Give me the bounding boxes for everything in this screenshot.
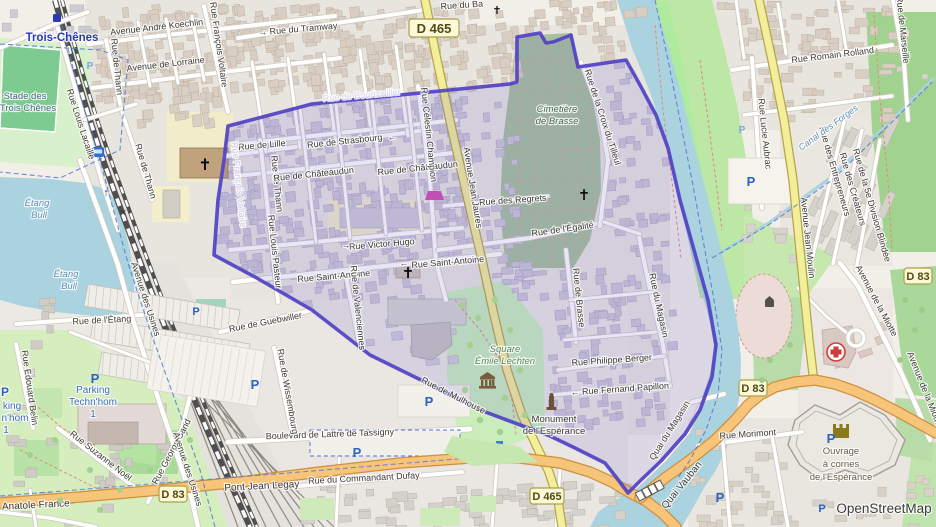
svg-text:P: P [91, 371, 100, 386]
svg-text:Étang: Étang [54, 269, 80, 280]
svg-text:D 83: D 83 [161, 489, 184, 501]
svg-text:P: P [251, 377, 260, 392]
svg-text:P: P [87, 61, 94, 72]
svg-text:Square: Square [490, 344, 521, 355]
svg-text:à cornes: à cornes [823, 459, 860, 470]
svg-text:P: P [1, 385, 9, 399]
svg-text:de l'Espérance: de l'Espérance [810, 472, 873, 483]
svg-text:Ouvrage: Ouvrage [823, 446, 859, 457]
svg-text:P: P [425, 394, 434, 409]
svg-text:Cimetière: Cimetière [537, 104, 578, 115]
svg-text:D 83: D 83 [906, 271, 929, 283]
svg-text:P: P [747, 174, 756, 189]
svg-text:de l'Espérance: de l'Espérance [523, 426, 586, 437]
svg-text:✕: ✕ [119, 208, 127, 218]
svg-text:Émile Lechten: Émile Lechten [475, 356, 535, 367]
svg-text:D 465: D 465 [417, 21, 452, 36]
svg-text:P: P [818, 503, 825, 515]
svg-text:Étang: Étang [25, 198, 51, 209]
svg-text:Techn'hom: Techn'hom [69, 397, 117, 408]
svg-text:P: P [353, 445, 362, 460]
svg-text:↑: ↑ [103, 187, 109, 199]
svg-text:1: 1 [90, 409, 96, 420]
svg-text:Stade des: Stade des [4, 91, 47, 102]
svg-text:Trois-Chênes: Trois-Chênes [26, 32, 99, 44]
svg-text:Bull: Bull [61, 281, 78, 292]
svg-text:OpenStreetMap: OpenStreetMap [836, 501, 931, 516]
svg-text:✝: ✝ [198, 157, 211, 174]
svg-text:de Brasse: de Brasse [536, 116, 579, 127]
svg-text:n'hom: n'hom [2, 413, 29, 424]
svg-text:✝: ✝ [492, 5, 501, 17]
svg-text:→: → [342, 240, 351, 250]
svg-text:Bull: Bull [31, 210, 48, 221]
svg-text:✝: ✝ [578, 187, 591, 204]
svg-text:1: 1 [3, 425, 9, 436]
svg-text:P: P [827, 431, 836, 446]
svg-text:D 83: D 83 [741, 383, 764, 395]
svg-text:P: P [739, 125, 746, 136]
svg-text:Monument: Monument [532, 414, 577, 425]
svg-text:Trois Chênes: Trois Chênes [0, 103, 56, 114]
svg-text:←: ← [400, 258, 409, 268]
svg-text:Parking: Parking [76, 385, 110, 396]
svg-text:king: king [3, 401, 21, 412]
svg-text:P: P [192, 306, 199, 318]
svg-text:D 465: D 465 [532, 491, 561, 503]
svg-text:P: P [716, 490, 725, 505]
svg-text:←: ← [388, 132, 397, 142]
